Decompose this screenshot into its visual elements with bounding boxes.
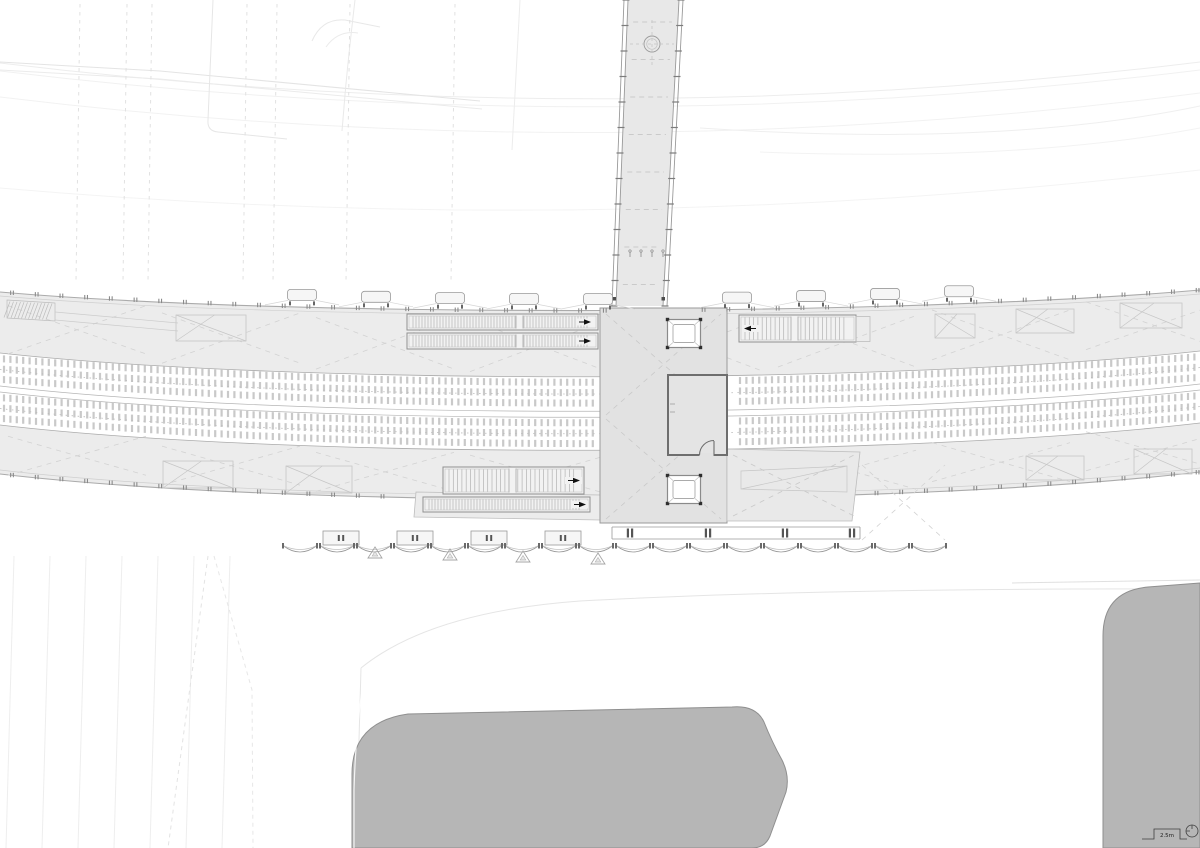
escalator-south [423,497,590,512]
building-east [1103,583,1200,848]
context-roads [0,0,1200,282]
stair-north [739,315,870,342]
escalator-north-1 [407,314,598,330]
escalator-north-2 [407,333,598,349]
footbridge [611,0,685,306]
scale-label: 2.5m [1160,833,1174,839]
service-room [668,375,727,455]
stair-south [443,467,584,494]
station-site-plan-canvas: 2.5m [0,0,1200,848]
building-south [352,707,787,848]
elevator-north [666,318,702,349]
elevator-south [666,474,702,505]
